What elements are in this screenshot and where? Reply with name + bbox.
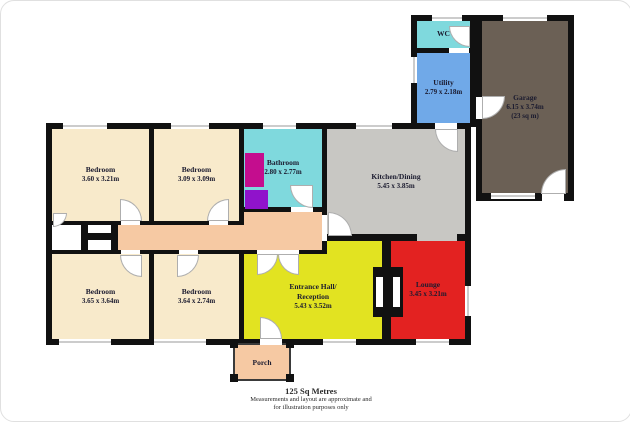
window xyxy=(432,15,462,21)
room-utility: Utility 2.79 x 2.18m xyxy=(417,53,470,123)
room-label: Porch xyxy=(252,358,271,367)
room-dimensions: 6.15 x 3.74m xyxy=(506,103,543,112)
fireplace-notch xyxy=(393,277,400,307)
room-label: Bedroom xyxy=(86,165,115,175)
window xyxy=(59,339,111,345)
room-label: Utility xyxy=(433,78,453,88)
doorway xyxy=(209,221,228,225)
room-dimensions: 2.79 x 2.18m xyxy=(425,88,462,97)
doorway xyxy=(121,250,140,254)
porch-post xyxy=(230,340,238,348)
footer-note: 125 Sq Metres Measurements and layout ar… xyxy=(131,386,491,413)
room-area-note: (23 sq m) xyxy=(511,112,539,121)
room-entrance-hall-ext xyxy=(327,241,382,254)
doorway xyxy=(121,221,140,225)
window xyxy=(154,339,206,345)
room-dimensions: 3.60 x 3.21m xyxy=(82,175,119,184)
room-label: Garage xyxy=(513,93,537,103)
floorplan-page: Bedroom 3.60 x 3.21m Bedroom 3.09 x 3.09… xyxy=(0,0,630,422)
window xyxy=(491,193,535,199)
porch-post xyxy=(286,340,294,348)
hallway-corridor-east xyxy=(244,212,322,250)
doorway xyxy=(322,215,327,241)
window xyxy=(416,339,449,345)
room-dimensions: 3.45 x 3.21m xyxy=(409,290,446,299)
room-dimensions: 3.09 x 3.09m xyxy=(178,175,215,184)
window xyxy=(263,123,296,129)
room-label: Bedroom xyxy=(86,287,115,297)
room-dimensions: 3.64 x 2.74m xyxy=(178,297,215,306)
fireplace-notch xyxy=(376,277,383,307)
window xyxy=(63,123,107,129)
toilet-fixture xyxy=(245,190,268,209)
window xyxy=(465,286,471,316)
doorway xyxy=(179,250,198,254)
porch-post xyxy=(230,374,238,382)
doorway xyxy=(542,193,564,201)
doorway xyxy=(449,48,469,53)
room-dimensions: 5.45 x 3.85m xyxy=(377,182,414,191)
room-dimensions: 3.65 x 3.64m xyxy=(82,297,119,306)
room-porch: Porch xyxy=(233,343,291,381)
window xyxy=(411,57,417,83)
room-label: Entrance Hall/ xyxy=(289,282,336,292)
window xyxy=(503,15,547,21)
room-dimensions: 5.43 x 3.52m xyxy=(294,302,331,311)
room-bedroom-bottom-mid: Bedroom 3.64 x 2.74m xyxy=(154,254,239,339)
bath-fixture xyxy=(245,153,264,187)
closet-divider xyxy=(86,233,113,240)
kitchen-lounge-doorway xyxy=(417,234,457,241)
window xyxy=(356,123,392,129)
window xyxy=(323,339,356,345)
room-label: Lounge xyxy=(416,280,440,290)
room-label: Bathroom xyxy=(267,158,299,168)
room-label: WC xyxy=(437,29,450,39)
doorway xyxy=(260,339,282,345)
disclaimer-line1: Measurements and layout are approximate … xyxy=(131,396,491,404)
window xyxy=(171,123,209,129)
porch-post xyxy=(286,374,294,382)
room-label: Bedroom xyxy=(182,287,211,297)
room-label: Bedroom xyxy=(182,165,211,175)
room-dimensions: 2.80 x 2.77m xyxy=(264,168,301,177)
hallway-corridor xyxy=(118,225,244,250)
total-area: 125 Sq Metres xyxy=(131,386,491,396)
disclaimer-line2: for illustration purposes only xyxy=(131,404,491,412)
room-label: Kitchen/Dining xyxy=(371,172,420,182)
room-label: Reception xyxy=(297,292,329,302)
